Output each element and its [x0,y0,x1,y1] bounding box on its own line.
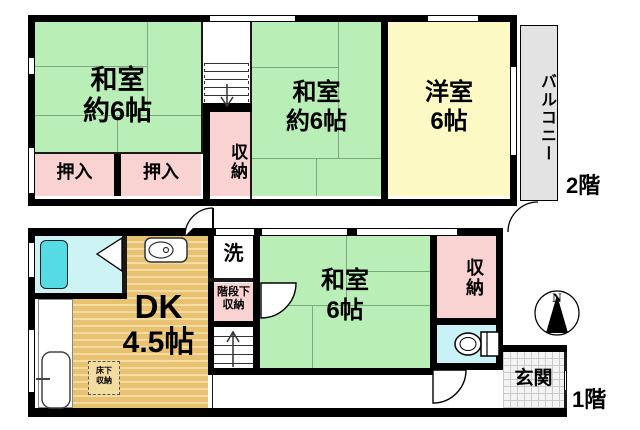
bathtub [40,240,68,289]
room-label-washitsu-2f-mid-size: 約6帖 [252,109,381,134]
room-label-dk-size: 4.5帖 [80,327,237,359]
wall [114,154,121,196]
stair-step [214,363,253,364]
room-label-storage-2f: 収納 [214,133,246,191]
room-toilet-1f [437,325,496,363]
window [210,15,295,22]
room-label-washitsu-1f-size: 6帖 [260,298,430,323]
stair-step [205,71,248,72]
window [28,148,35,193]
room-label-oshiire-2: 押入 [121,163,201,182]
wall [208,368,440,375]
floorplan: 和室 約6帖 和室 約6帖 洋室 6帖 バルコニー 押入 押入 収納 2階 洗 … [0,0,640,430]
wall [28,408,567,417]
wall [203,112,210,199]
room-label-washitsu-2f-left-size: 約6帖 [40,97,195,125]
stair-rail [248,63,249,103]
stair-step [205,95,248,96]
wall [437,318,503,325]
window [28,58,35,74]
floor-label-2f: 2階 [566,174,600,197]
wall [496,345,567,352]
window [28,243,35,277]
room-label-washitsu-2f-left-name: 和室 [40,66,195,94]
wall [430,363,503,370]
kitchen-counter [38,299,73,408]
wall [203,103,252,112]
window [357,228,457,236]
window [428,15,478,22]
compass-north-label: N [549,291,565,305]
room-label-laundry: 洗 [214,244,253,265]
stair-step [205,87,248,88]
room-label-balcony: バルコニー [524,48,554,188]
window [28,330,35,392]
label-underfloor-2: 収納 [88,377,120,385]
wall [430,236,437,370]
wall [212,375,213,408]
stair-step [205,63,248,64]
window [564,371,567,390]
room-label-youshitsu-name: 洋室 [388,80,510,105]
stair-step [205,79,248,80]
wall [122,236,127,293]
window [510,67,517,155]
room-label-storage-1f: 収納 [449,248,483,308]
room-label-dk-name: DK [80,290,237,325]
window [262,228,347,236]
stair-rail [204,63,205,103]
wall [381,22,388,199]
label-underfloor-1: 床下 [88,367,120,375]
room-label-youshitsu-size: 6帖 [388,109,510,134]
room-label-washitsu-2f-mid-name: 和室 [252,80,381,105]
floor-label-1f: 1階 [572,388,606,411]
window [216,228,254,236]
room-label-oshiire-1: 押入 [35,163,114,182]
door-arc [508,202,538,232]
room-label-entrance: 玄関 [503,369,564,389]
room-label-washitsu-1f-name: 和室 [260,268,430,293]
